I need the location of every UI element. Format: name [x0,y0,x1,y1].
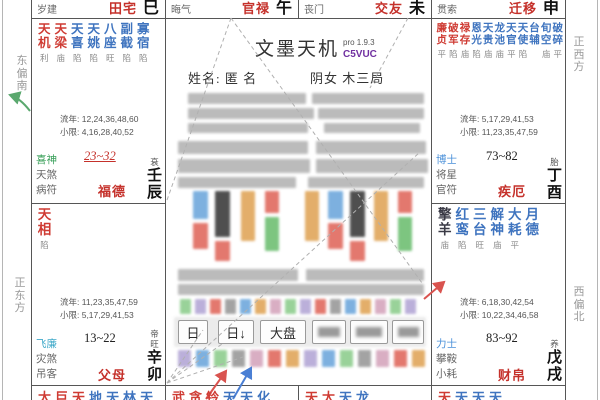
star-list-clipped: 武贪铃天天化 [172,388,270,400]
branch-char: 申 [543,0,559,18]
redacted-text [316,159,428,173]
star-status: 陷 [89,52,98,64]
person-name: 姓名: 匿 名 [188,68,257,87]
stembranch-char: 丁 [547,167,562,184]
palace-name: 疾厄 [498,181,526,200]
redacted-text [324,123,420,133]
palace-name: 福德 [98,181,126,200]
redacted-chip [240,299,251,314]
redacted-color-block [374,191,388,241]
god-病符: 病符 [36,183,57,198]
god-喜神: 喜神 [36,153,57,168]
star-list-clipped: 太巨天地天林天 [38,388,153,400]
star-list: 廉贞平破军陷禄存庙恩光陷天贵庙龙池庙天官平天使陷台辅 旬空庙破碎平 [436,23,564,60]
stage-stembranch: 胎丁酉 [547,157,562,201]
god-攀鞍: 攀鞍 [436,352,457,367]
redacted-chip [225,299,236,314]
star-天梁: 天梁庙 [53,23,70,64]
star-list-clipped: 天天天天 [438,388,502,400]
redacted-text [178,284,424,295]
star-天机: 天机利 [36,23,53,64]
xiaoxian-ages: 小限: 5,17,29,41,53 [60,309,134,322]
star-八座: 八座旺 [102,23,119,64]
god-力士: 力士 [436,337,457,352]
star-天姚: 天姚陷 [86,23,103,64]
palace-cell-戊戌[interactable]: 擎羊庙红鸾陷三台旺解神庙大耗平月德 流年: 6,18,30,42,54小限: 1… [432,204,565,385]
redacted-text [188,93,306,104]
stembranch-char: 辰 [147,184,162,201]
palace-name: 迁移 [509,0,537,17]
star-status: 庙 [440,239,449,251]
redacted-text [188,123,308,133]
star-三台: 三台旺 [471,208,489,251]
toolbar-button-redacted-3[interactable] [392,320,424,344]
minor-gods: 力士攀鞍小耗 [436,337,457,382]
palace-name: 交友 [375,0,403,17]
stembranch-char: 戌 [547,366,562,383]
redacted-button-label [356,327,381,337]
redacted-chip [376,350,389,367]
redacted-color-block [215,241,230,261]
branch-char: 未 [409,0,425,18]
palace-cell-bottom-丑[interactable]: 武贪铃天天化 [166,386,298,400]
decade-age-range: 13~22 [84,331,116,346]
star-status: 陷 [122,52,131,64]
liunian-ages: 流年: 5,17,29,41,53 [460,113,534,126]
god-飞廉: 飞廉 [36,337,57,352]
palace-name: 官禄 [242,0,270,17]
star-list-clipped: 天太天龙 [305,388,369,400]
xiaoxian-ages: 小限: 10,22,34,46,58 [460,309,538,322]
star-status: 庙 [496,48,505,60]
redacted-color-block [215,191,230,237]
stembranch-char: 卯 [147,366,162,383]
stage-stembranch: 养戊戌 [547,339,562,383]
minor-gods: 飞廉灾煞吊客 [36,337,57,382]
redacted-chip [285,299,296,314]
star-status: 平 [438,48,447,60]
lifecycle-stage: 旺 [150,339,159,349]
redacted-text [178,269,298,281]
year-god-label: 晦气 [171,1,191,16]
compass-east-southeast: 东偏南 [16,55,28,93]
star-status: 利 [40,52,49,64]
app-code: C5VUC [343,49,377,60]
redacted-color-block [265,191,279,213]
star-旬空: 旬空庙 [540,23,552,60]
stage-stembranch: 衰壬辰 [147,157,162,201]
toolbar-button-redacted-1[interactable] [312,320,346,344]
outer-border-right [597,0,598,400]
star-台辅: 台辅 [529,23,541,60]
redacted-chip [322,350,335,367]
star-status: 陷 [458,239,467,251]
redacted-color-block [350,241,365,261]
toolbar-button-2[interactable]: 日↓ [218,320,254,344]
redacted-chip [232,350,245,367]
redacted-chip [270,299,281,314]
star-status: 陷 [73,52,82,64]
app-version: pro 1.9.3 [343,38,375,47]
redacted-text [312,93,424,104]
compass-due-east: 正东方 [14,277,26,315]
star-status: 平 [553,48,562,60]
redacted-chip [412,350,425,367]
redacted-chip [405,299,416,314]
grid-v-right [565,0,566,400]
palace-name: 田宅 [109,0,137,17]
redacted-text [316,141,426,154]
redacted-text [188,108,314,119]
redacted-chip [250,350,263,367]
star-status: 庙 [56,52,65,64]
stembranch-char: 戊 [547,349,562,366]
star-恩光: 恩光陷 [471,23,483,60]
star-破军: 破军陷 [448,23,460,60]
redacted-chip [304,350,317,367]
redacted-color-block [193,223,208,249]
star-破碎: 破碎平 [552,23,564,60]
palace-cell-丁酉[interactable]: 廉贞平破军陷禄存庙恩光陷天贵庙龙池庙天官平天使陷台辅 旬空庙破碎平流年: 5,1… [432,19,565,203]
redacted-chip [345,299,356,314]
star-status: 庙 [484,48,493,60]
toolbar-button-1[interactable]: 日 [178,320,208,344]
redacted-text [178,177,296,188]
compass-due-west: 正西方 [573,36,585,74]
palace-cell-辛卯[interactable]: 天相陷流年: 11,23,35,47,59小限: 5,17,29,41,53飞廉… [32,204,165,385]
star-天官: 天官平 [506,23,518,60]
xiaoxian-ages: 小限: 11,23,35,47,59 [460,126,538,139]
redacted-chip [178,350,191,367]
redacted-chip [268,350,281,367]
star-status: 旺 [475,239,484,251]
redacted-color-block [398,191,412,213]
god-官符: 官符 [436,183,457,198]
star-红鸾: 红鸾陷 [454,208,472,251]
center-info-panel: 文墨天机 pro 1.9.3 C5VUC 姓名: 匿 名 阴女 木三局 日日↓大… [166,19,431,385]
star-status: 庙 [493,239,502,251]
star-月德: 月德 [524,208,542,251]
liunian-ages: 流年: 12,24,36,48,60 [60,113,138,126]
palace-cell-壬辰[interactable]: 天机利天梁庙天喜陷天姚陷八座旺副截陷寡宿陷流年: 12,24,36,48,60小… [32,19,165,203]
branch-char: 巳 [143,0,159,18]
year-god-label: 贯索 [437,1,457,16]
star-status: 陷 [449,48,458,60]
redacted-chip [330,299,341,314]
minor-gods: 博士将星官符 [436,153,457,198]
year-god-label: 丧门 [304,1,324,16]
redacted-text [308,177,424,188]
god-小耗: 小耗 [436,367,457,382]
redacted-chip [300,299,311,314]
god-天煞: 天煞 [36,168,57,183]
redacted-chip [214,350,227,367]
redacted-button-label [398,327,419,337]
god-灾煞: 灾煞 [36,352,57,367]
star-寡宿: 寡宿陷 [135,23,152,64]
star-大耗: 大耗平 [506,208,524,251]
god-博士: 博士 [436,153,457,168]
compass-direction-arrow [10,95,30,111]
star-status [531,239,533,249]
redacted-chip [358,350,371,367]
star-擎羊: 擎羊庙 [436,208,454,251]
compass-west-northwest: 西偏北 [573,286,585,324]
redacted-text [178,159,310,173]
redacted-chip [196,350,209,367]
palace-cell-bottom-子[interactable]: 天太天龙 [299,386,431,400]
star-status: 旺 [106,52,115,64]
redacted-color-block [265,217,279,251]
xiaoxian-ages: 小限: 4,16,28,40,52 [60,126,134,139]
branch-char: 午 [276,0,292,18]
palace-cell-top-巳[interactable]: 岁建田宅巳 [32,0,165,18]
star-天相: 天相陷 [36,208,53,251]
star-list: 天机利天梁庙天喜陷天姚陷八座旺副截陷寡宿陷 [36,23,152,64]
person-gender-bureau: 阴女 木三局 [310,68,384,87]
star-天贵: 天贵庙 [482,23,494,60]
redacted-text [178,141,308,154]
star-龙池: 龙池庙 [494,23,506,60]
palace-cell-top-午[interactable]: 晦气官禄午 [166,0,298,18]
stembranch-char: 酉 [547,184,562,201]
redacted-chip [195,299,206,314]
star-副截: 副截陷 [119,23,136,64]
decade-age-range: 83~92 [486,331,518,346]
palace-name: 财帛 [498,365,526,384]
star-status: 平 [510,239,519,251]
palace-cell-bottom-寅[interactable]: 太巨天地天林天 [32,386,165,400]
star-天使: 天使陷 [517,23,529,60]
redacted-chip [286,350,299,367]
toolbar-button-redacted-2[interactable] [350,320,388,344]
god-吊客: 吊客 [36,367,57,382]
decade-age-range: 73~82 [486,149,518,164]
palace-cell-bottom-亥[interactable]: 天天天天 [432,386,565,400]
redacted-button-label [318,327,340,337]
star-status: 陷 [472,48,481,60]
redacted-chip [255,299,266,314]
stembranch-char: 壬 [147,167,162,184]
star-status: 陷 [519,48,528,60]
outer-border-left [2,0,3,400]
redacted-color-block [328,223,343,249]
redacted-color-block [350,191,365,237]
star-status: 陷 [139,52,148,64]
redacted-chip [210,299,221,314]
redacted-color-block [328,191,343,219]
star-天喜: 天喜陷 [69,23,86,64]
palace-name: 父母 [98,365,126,384]
star-禄存: 禄存庙 [459,23,471,60]
star-status: 平 [507,48,516,60]
ziwei-chart-screen: 东偏南 正东方 正西方 西偏北 文墨天机 pro 1.9.3 C5VUC 姓名:… [0,0,600,400]
star-解神: 解神庙 [489,208,507,251]
stembranch-char: 辛 [147,349,162,366]
redacted-text [318,108,424,119]
redacted-text [306,269,424,281]
toolbar-button-3[interactable]: 大盘 [260,320,306,344]
redacted-chip [340,350,353,367]
redacted-chip [390,299,401,314]
redacted-chip [180,299,191,314]
redacted-color-block [398,217,412,251]
star-status: 庙 [461,48,470,60]
star-status: 庙 [542,48,551,60]
redacted-color-block [305,191,319,241]
redacted-chip [375,299,386,314]
stage-stembranch: 帝旺辛卯 [147,329,162,383]
liunian-ages: 流年: 6,18,30,42,54 [460,296,534,309]
liunian-ages: 流年: 11,23,35,47,59 [60,296,138,309]
app-title: 文墨天机 [255,34,339,61]
redacted-chip [315,299,326,314]
star-status: 陷 [40,239,49,251]
lifecycle-stage: 胎 [550,157,559,167]
god-将星: 将星 [436,168,457,183]
star-list: 天相陷 [36,208,53,251]
redacted-color-block [241,191,255,241]
lifecycle-stage: 养 [550,339,559,349]
star-status [533,48,535,58]
redacted-color-block [193,191,208,219]
palace-cell-top-未[interactable]: 丧门交友未 [299,0,431,18]
lifecycle-stage: 帝 [150,329,159,339]
redacted-chip [360,299,371,314]
minor-gods: 喜神天煞病符 [36,153,57,198]
star-list: 擎羊庙红鸾陷三台旺解神庙大耗平月德 [436,208,541,251]
redacted-chip [394,350,407,367]
star-廉贞: 廉贞平 [436,23,448,60]
lifecycle-stage: 衰 [150,157,159,167]
decade-age-range[interactable]: 23~32 [84,149,116,164]
palace-cell-top-申[interactable]: 贯索迁移申 [432,0,565,18]
year-god-label: 岁建 [37,1,57,16]
